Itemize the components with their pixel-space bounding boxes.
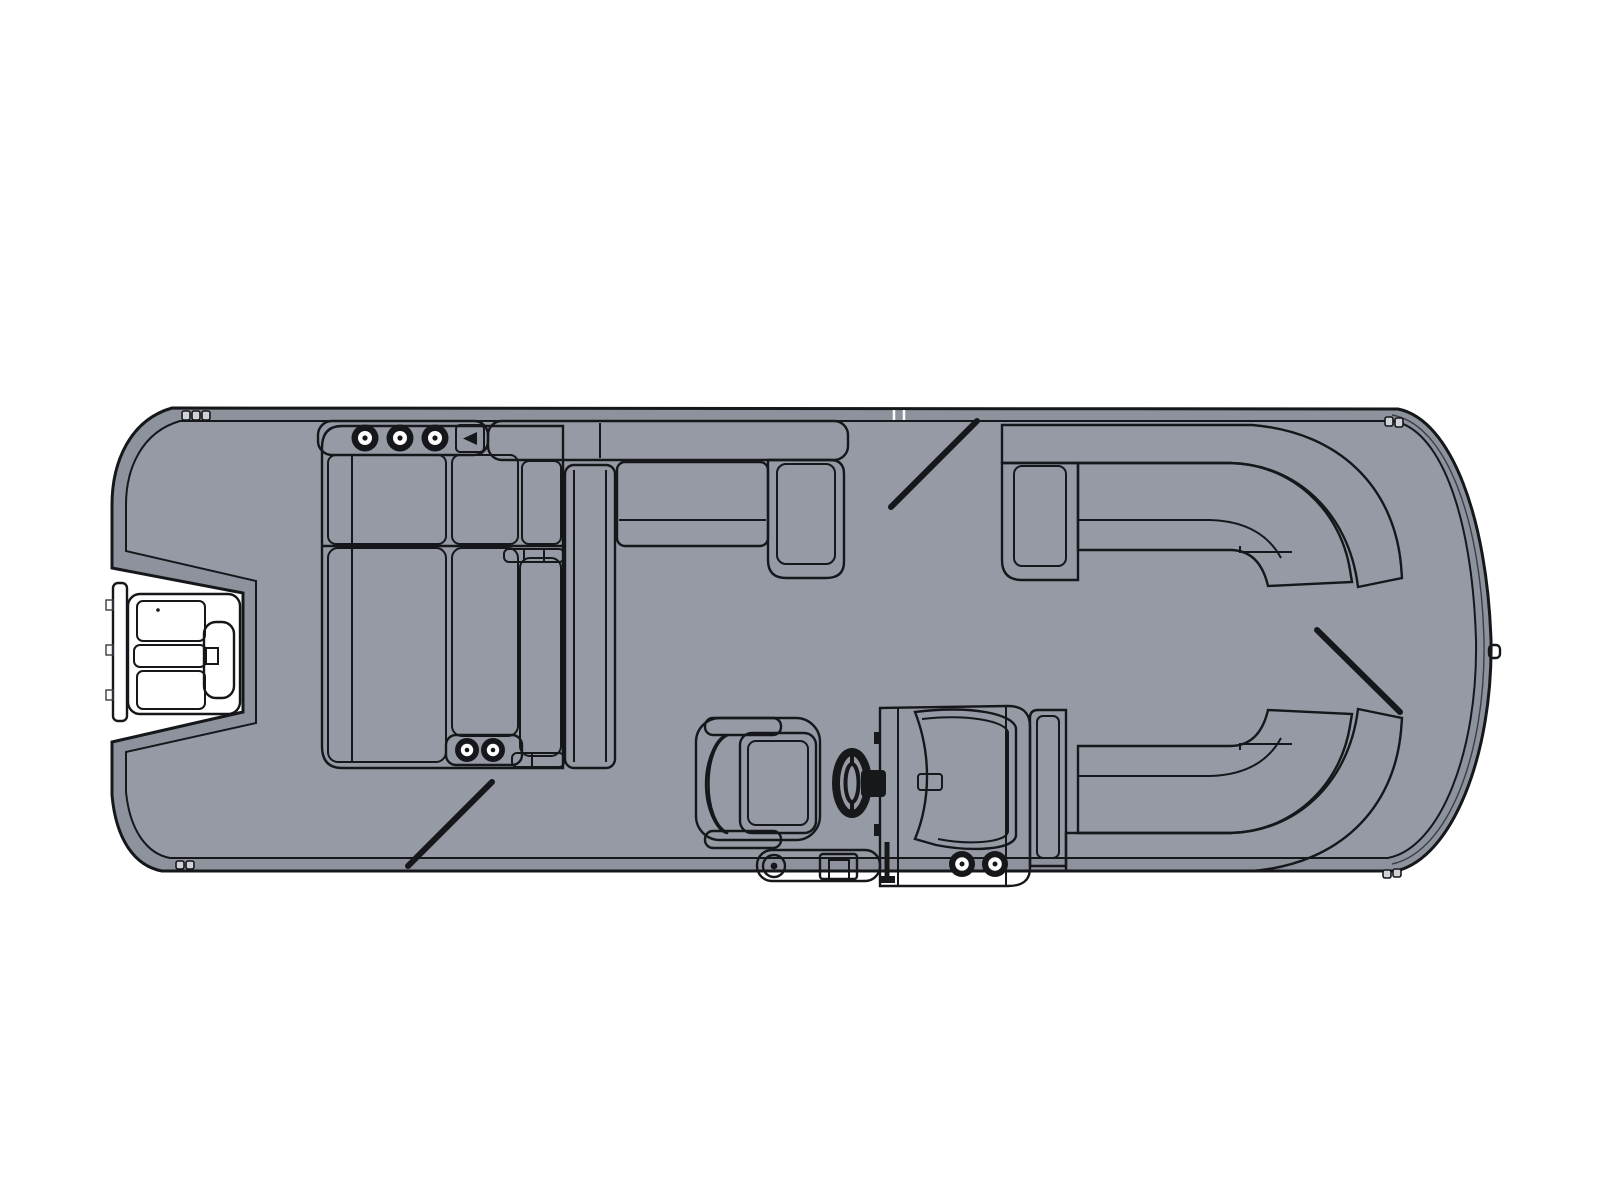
cupholder	[949, 851, 975, 877]
cupholder	[982, 851, 1008, 877]
hinge-dot	[1385, 417, 1393, 426]
hinge-dot	[1395, 418, 1403, 427]
hinge-dot	[1393, 869, 1401, 877]
cupholder	[422, 425, 449, 452]
cupholder	[455, 738, 479, 762]
console-hinge-nub	[874, 824, 881, 836]
hinge-dot	[202, 411, 210, 420]
motor-detail-dot	[156, 608, 160, 612]
gate-rod-foot	[880, 876, 895, 883]
cupholder	[387, 425, 414, 452]
hinge-dot	[1383, 870, 1391, 878]
gate-hinge-pin	[771, 863, 778, 870]
cupholder	[352, 425, 379, 452]
floorplan-svg	[0, 0, 1600, 1200]
hinge-dot	[192, 411, 200, 420]
pontoon-floorplan-canvas	[0, 0, 1600, 1200]
hinge-dot	[186, 861, 194, 869]
cupholder	[481, 738, 505, 762]
hinge-dot	[176, 861, 184, 869]
console-hinge-nub	[874, 732, 881, 744]
hinge-dot	[182, 411, 190, 420]
